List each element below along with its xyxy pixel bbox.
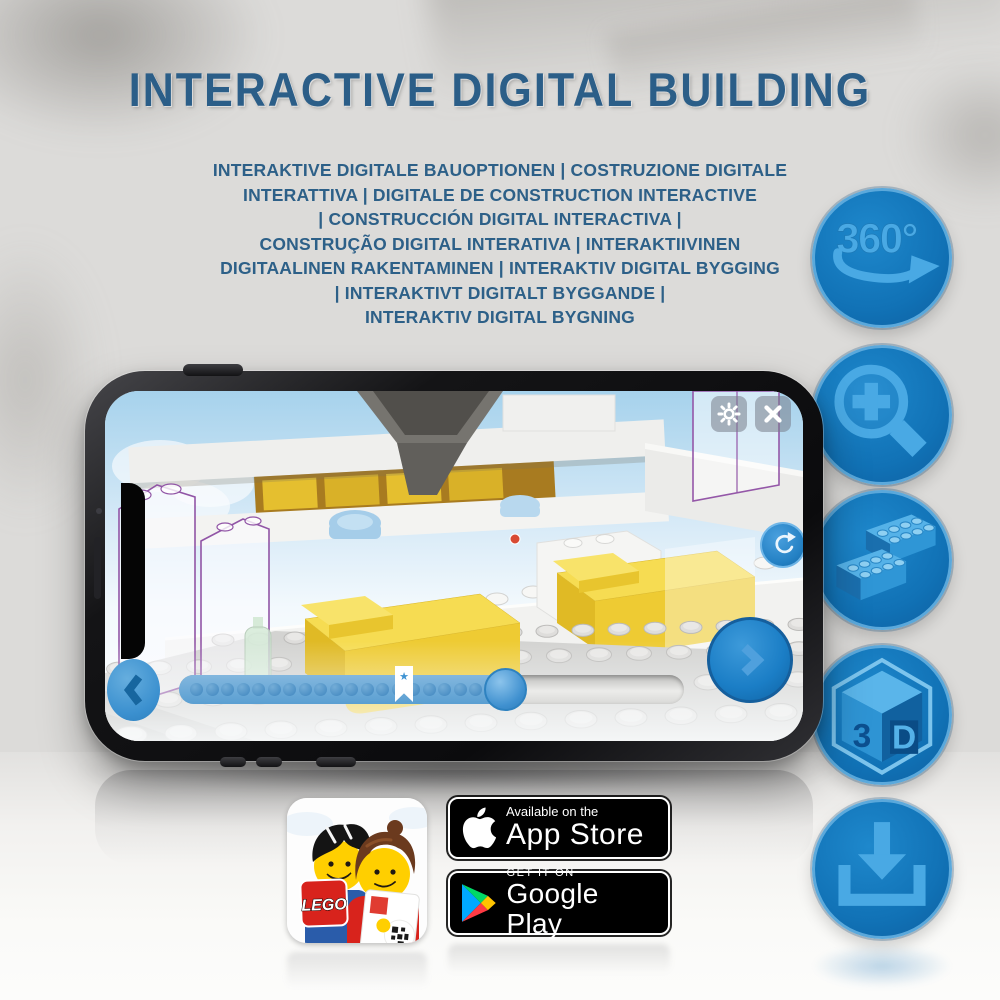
progress-dot — [221, 683, 234, 696]
rotate-360-icon: 360° — [815, 191, 949, 325]
next-step-button[interactable] — [707, 617, 793, 703]
progress-dot — [438, 683, 451, 696]
side-button — [256, 757, 282, 767]
small-red-piece — [510, 534, 520, 544]
smartphone: ★ — [85, 371, 823, 761]
subtitle-line: | CONSTRUCCIÓN DIGITAL INTERACTIVA | — [150, 207, 850, 232]
progress-dot — [190, 683, 203, 696]
close-button[interactable] — [755, 396, 791, 432]
progress-dot — [376, 683, 389, 696]
svg-text:3: 3 — [853, 718, 872, 755]
progress-dot — [299, 683, 312, 696]
progress-dot — [314, 683, 327, 696]
cube-3d-icon: 3 D — [815, 648, 949, 782]
page-title: INTERACTIVE DIGITAL BUILDING — [0, 64, 1000, 118]
progress-dot — [206, 683, 219, 696]
subtitle-line: CONSTRUÇÃO DIGITAL INTERATIVA | INTERAKT… — [150, 232, 850, 257]
progress-handle[interactable] — [484, 668, 527, 711]
progress-dot — [237, 683, 250, 696]
lego-bricks-icon — [815, 493, 949, 627]
badge-reflection — [812, 944, 952, 988]
app-icon-reflection — [287, 952, 427, 988]
feature-3d-badge: 3 D — [812, 645, 952, 785]
lego-app-icon[interactable]: LEGO — [287, 798, 427, 943]
app-store-tagline: Available on the — [506, 805, 644, 819]
google-play-name: Google Play — [507, 879, 656, 938]
progress-dot — [268, 683, 281, 696]
poster: INTERACTIVE DIGITAL BUILDING INTERAKTIVE… — [0, 0, 1000, 1000]
gear-icon — [716, 401, 742, 427]
progress-dot — [423, 683, 436, 696]
progress-dot — [330, 683, 343, 696]
svg-text:360°: 360° — [836, 215, 917, 262]
google-play-icon — [462, 883, 497, 923]
subtitle-line: DIGITAALINEN RAKENTAMINEN | INTERAKTIV D… — [150, 256, 850, 281]
front-camera — [96, 508, 102, 514]
feature-download-badge — [812, 799, 952, 939]
zoom-in-icon — [815, 348, 949, 482]
speaker-slit — [94, 537, 101, 599]
progress-dot — [252, 683, 265, 696]
multilanguage-subtitle: INTERAKTIVE DIGITALE BAUOPTIONEN | COSTR… — [150, 158, 850, 330]
previous-step-button[interactable] — [107, 659, 160, 721]
subtitle-line: INTERATTIVA | DIGITALE DE CONSTRUCTION I… — [150, 183, 850, 208]
app-store-name: App Store — [506, 819, 644, 851]
phone-screen: ★ — [105, 391, 803, 741]
progress-dot — [454, 683, 467, 696]
feature-bricks-badge — [812, 490, 952, 630]
lego-logo: LEGO — [300, 879, 348, 927]
google-play-badge[interactable]: GET IT ON Google Play — [448, 871, 670, 935]
phone-notch — [121, 483, 145, 659]
chevron-left-icon — [119, 669, 149, 711]
instruction-card — [360, 889, 420, 943]
chevron-right-icon — [724, 634, 776, 686]
progress-dot — [283, 683, 296, 696]
close-icon — [760, 401, 786, 427]
side-button — [316, 757, 356, 767]
progress-dot — [361, 683, 374, 696]
apple-icon — [462, 807, 496, 849]
settings-button[interactable] — [711, 396, 747, 432]
badges-reflection — [448, 944, 670, 974]
progress-dot — [469, 683, 482, 696]
rotate-icon — [768, 530, 798, 560]
rotate-model-button[interactable] — [760, 522, 803, 568]
subtitle-line: | INTERAKTIVT DIGITALT BYGGANDE | — [150, 281, 850, 306]
progress-fill — [179, 675, 513, 704]
svg-text:LEGO: LEGO — [301, 896, 347, 915]
volume-button — [183, 364, 243, 376]
app-store-badge[interactable]: Available on the App Store — [448, 797, 670, 859]
subtitle-line: INTERAKTIV DIGITAL BYGNING — [150, 305, 850, 330]
side-button — [220, 757, 246, 767]
progress-dot — [345, 683, 358, 696]
download-icon — [815, 802, 949, 936]
feature-zoom-badge — [812, 345, 952, 485]
build-progress-bar[interactable]: ★ — [179, 675, 684, 704]
subtitle-line: INTERAKTIVE DIGITALE BAUOPTIONEN | COSTR… — [150, 158, 850, 183]
svg-text:D: D — [892, 720, 916, 757]
lego-app-art: LEGO — [287, 798, 427, 943]
feature-360-rotation-badge: 360° — [812, 188, 952, 328]
